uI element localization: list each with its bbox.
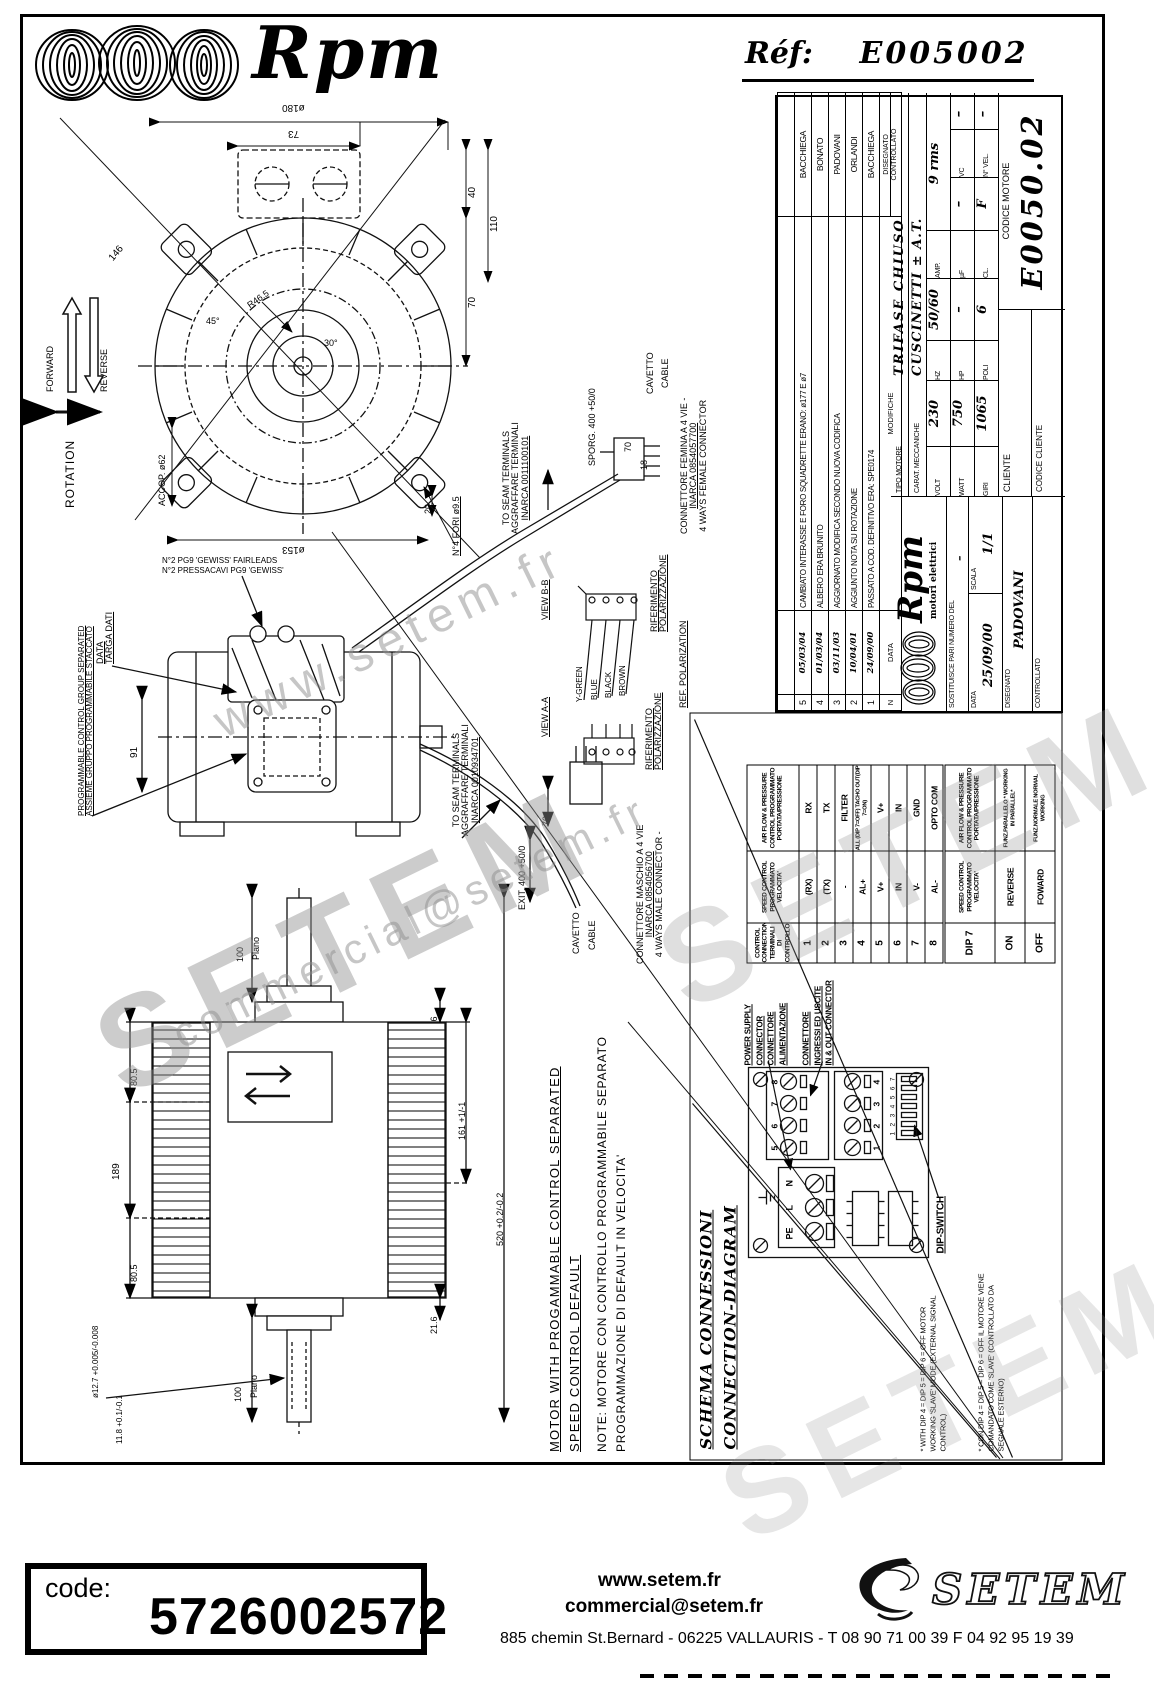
codice-motore-box: CODICE MOTORE E0050.02 <box>999 93 1065 309</box>
codice-cliente-box: CODICE CLIENTE <box>1032 309 1065 496</box>
connection-table: CONTROL CONNECTION TERMINALI DI CONTROLL… <box>747 765 944 964</box>
mid-side-view <box>92 576 456 836</box>
data-field: DATA 25/09/00 <box>969 593 1002 711</box>
dip-row-on: ONREVERSEFUNZ.PARALLELO * WORKING IN PAR… <box>995 765 1025 963</box>
conn-row-8: 8AL-OPTO COM <box>925 765 943 963</box>
schema-note-en: * WITH DIP 4 = DIP 5 = DIP 6 = OFF MOTOR… <box>919 1272 948 1452</box>
connection-diagram-block: PE L N 5 6 7 8 1 2 3 4 <box>690 713 1063 1461</box>
rpm-sub: motori elettrici <box>929 542 939 619</box>
top-cable <box>352 438 660 654</box>
disegnato-field: DISEGNATO PADOVANI <box>1003 496 1033 711</box>
front-view <box>138 150 468 534</box>
codice-motore-value: E0050.02 <box>1015 93 1049 309</box>
schema-title: SCHEMA CONNESSIONI CONNECTION-DIAGRAM <box>695 1205 743 1449</box>
giri-row: GIRI1065POLI6CL.FN° VEL.– <box>975 93 999 496</box>
schema-note-it: * CON DIP 4 = DIP 5 = DIP 6 = OFF IL MOT… <box>977 1266 1006 1452</box>
mid-cable <box>420 744 602 908</box>
mod-row-4: 401/03/04ALBERO ERA BRUNITOBONATO <box>812 93 829 711</box>
conn-row-1: 1(RX)RX <box>799 765 817 963</box>
mod-row-2: 210/04/01AGGIUNTO NOTA SU ROTAZIONEORLAN… <box>846 93 863 711</box>
dip-switch-label: DIP-SWITCH <box>935 1196 950 1253</box>
dip-switch-block <box>897 1074 923 1140</box>
titleblock-left-column: Rpm motori elettrici SOSTITUISCE PARI NU… <box>891 496 1065 711</box>
svg-text:1: 1 <box>872 1146 882 1151</box>
svg-text:L: L <box>785 1205 795 1211</box>
power-supply-label: POWER SUPPLYCONNECTORCONNETTOREALIMENTAZ… <box>743 1003 789 1066</box>
svg-text:1234567: 1234567 <box>890 1077 897 1135</box>
mod-row-3: 303/11/03AGGIORNATO MODIFICA SECONDO NUO… <box>829 93 846 711</box>
io-connector-label: CONNETTOREINGRESSI ED USCITEIN & OUT CON… <box>801 980 836 1065</box>
conn-row-6: 6ININ <box>889 765 907 963</box>
svg-text:5: 5 <box>770 1146 780 1151</box>
conn-row-3: 3-FILTER <box>835 765 853 963</box>
title-block: 505/03/04CAMBIATO INTERASSE E FORO SQUAD… <box>775 95 1063 713</box>
modifications-table: 505/03/04CAMBIATO INTERASSE E FORO SQUAD… <box>777 92 902 711</box>
conn-row-7: 7V-GND <box>907 765 925 963</box>
volt-row: VOLT230HZ50/60AMP.9 rms <box>927 93 951 496</box>
mod-row-1: 124/09/00PASSATO A COD. DEFINITIVO ERA: … <box>863 93 880 711</box>
sostituisce-field: SOSTITUISCE PARI NUMERO DEL – <box>947 496 969 711</box>
svg-text:PE: PE <box>785 1227 795 1239</box>
svg-text:8: 8 <box>770 1080 780 1085</box>
titleblock-right-column: TIPO MOTORE TRIFASE CHIUSO CARAT. MECCAN… <box>891 93 1065 496</box>
rpm-script-small: Rpm <box>891 535 931 623</box>
rotation-arrows <box>56 298 103 412</box>
conn-row-4: 4AL+ALL (DIP 7=OFF) TACHO OUT(DIP 7=ON) <box>853 765 871 963</box>
dip-row-off: OFFFOWARDFUNZ.NORMALE NORMAL WORKING <box>1025 765 1055 963</box>
bottom-side-view <box>106 888 504 1434</box>
view-details <box>578 586 637 764</box>
conn-row-2: 2(TX)TX <box>817 765 835 963</box>
dip7-table: DIP 7 SPEED CONTROL PROGRAMMATO VELOCITA… <box>945 765 1056 964</box>
rpm-logo-small: Rpm motori elettrici <box>891 496 947 711</box>
scala-field: SCALA 1/1 <box>969 496 1002 593</box>
rpm-coils-small <box>899 631 939 705</box>
carat-meccaniche-row: CARAT. MECCANICHE CUSCINETTI ± A.T. <box>909 93 927 496</box>
cliente-box: CLIENTE <box>999 309 1032 496</box>
engineering-drawing-sheet: { "header": { "brand_script": "Rpm", "re… <box>0 0 1154 1683</box>
mod-row-5: 505/03/04CAMBIATO INTERASSE E FORO SQUAD… <box>795 93 812 711</box>
svg-text:2: 2 <box>872 1124 882 1129</box>
tipo-motore-row: TIPO MOTORE TRIFASE CHIUSO <box>891 93 909 496</box>
svg-text:N: N <box>785 1180 795 1187</box>
svg-text:7: 7 <box>770 1102 780 1107</box>
cliente-band: CLIENTE CODICE CLIENTE CODICE MOTORE E00… <box>999 93 1065 496</box>
conn-row-5: 5V+V+ <box>871 765 889 963</box>
watt-row: WATT750HP–µF–VC– <box>951 93 975 496</box>
controllato-field: CONTROLLATO <box>1033 496 1065 711</box>
data-scala-row: DATA 25/09/00 SCALA 1/1 <box>969 496 1003 711</box>
svg-text:6: 6 <box>770 1124 780 1129</box>
svg-text:4: 4 <box>872 1080 882 1085</box>
svg-text:3: 3 <box>872 1102 882 1107</box>
